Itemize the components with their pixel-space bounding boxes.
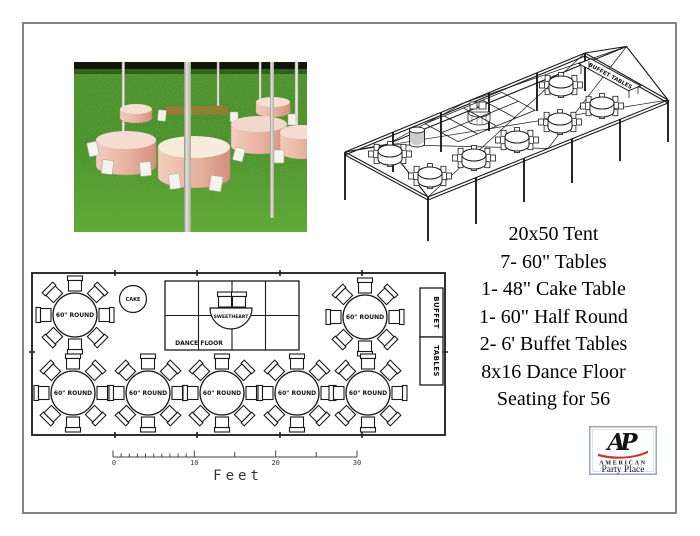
layout-sheet: BUFFET TABLES 20x50 Tent 7- 60" Tables 1…: [0, 0, 700, 536]
buffet-tables: BUFFET TABLES: [420, 288, 443, 385]
wireframe-3d-view: BUFFET TABLES: [338, 40, 695, 242]
wireframe-table: [539, 110, 582, 135]
round-table-label: 60" ROUND: [278, 390, 316, 397]
sweetheart-table: SWEETHEART: [210, 292, 252, 329]
center-tent-pole: [184, 62, 191, 232]
wireframe-cake-table: [410, 127, 425, 147]
round-table-label: 60" ROUND: [346, 314, 384, 321]
wireframe-table: [453, 146, 496, 171]
cake-table-label: CAKE: [126, 297, 141, 303]
round-table-label: 60" ROUND: [129, 390, 167, 397]
floor-plan: 60" ROUND60" ROUND60" ROUND60" ROUND60" …: [20, 262, 460, 492]
round-table-60: 60" ROUND: [109, 354, 187, 432]
wireframe-table: [369, 142, 412, 167]
wireframe-table: [496, 128, 539, 153]
round-table-60: 60" ROUND: [329, 354, 407, 432]
equipment-line-cake: 1- 48" Cake Table: [440, 276, 667, 304]
wireframe-table: [409, 164, 452, 189]
logo-party-place-text: Party Place: [601, 465, 644, 475]
equipment-line-seating: Seating for 56: [440, 386, 667, 414]
sweetheart-label: SWEETHEART: [214, 314, 250, 320]
round-table-label: 60" ROUND: [203, 390, 241, 397]
scale-unit-label: Feet: [213, 468, 263, 484]
equipment-line-dance-floor: 8x16 Dance Floor: [440, 359, 667, 387]
wireframe-table: [581, 94, 624, 119]
dance-floor-glimpse: [166, 106, 228, 115]
scale-ticks: [113, 451, 357, 458]
scale-label-0: 0: [112, 459, 116, 467]
dance-floor-label: DANCE FLOOR: [175, 340, 223, 347]
company-logo: AP AMERICAN Party Place: [589, 426, 657, 475]
scale-label-10: 10: [190, 459, 198, 467]
buffet-bottom-label: TABLES: [432, 345, 440, 377]
buffet-top-label: BUFFET: [432, 296, 440, 329]
scale-label-20: 20: [271, 459, 279, 467]
round-table-label: 60" ROUND: [349, 390, 387, 397]
cake-table: CAKE: [120, 286, 147, 313]
equipment-list: 20x50 Tent 7- 60" Tables 1- 48" Cake Tab…: [440, 221, 667, 414]
round-table-60: 60" ROUND: [34, 354, 112, 432]
round-table-label: 60" ROUND: [54, 390, 92, 397]
render-3d-preview: [74, 62, 307, 232]
round-table-60: 60" ROUND: [36, 276, 114, 354]
round-table-60: 60" ROUND: [258, 354, 336, 432]
equipment-line-half-round: 1- 60" Half Round: [440, 304, 667, 332]
right-tent-pole: [270, 62, 274, 218]
equipment-line-tables: 7- 60" Tables: [440, 249, 667, 277]
equipment-line-buffet: 2- 6' Buffet Tables: [440, 331, 667, 359]
scale-bar: 0 10 20 30 Feet: [112, 451, 361, 485]
equipment-line-tent: 20x50 Tent: [440, 221, 667, 249]
wireframe-table: [540, 73, 583, 98]
wireframe-buffet-tables: BUFFET TABLES: [579, 59, 641, 98]
round-table-60: 60" ROUND: [326, 278, 404, 356]
round-table-label: 60" ROUND: [56, 312, 94, 319]
round-table-60: 60" ROUND: [183, 354, 261, 432]
scale-label-30: 30: [353, 459, 361, 467]
wireframe-sweetheart-table: [468, 102, 490, 125]
